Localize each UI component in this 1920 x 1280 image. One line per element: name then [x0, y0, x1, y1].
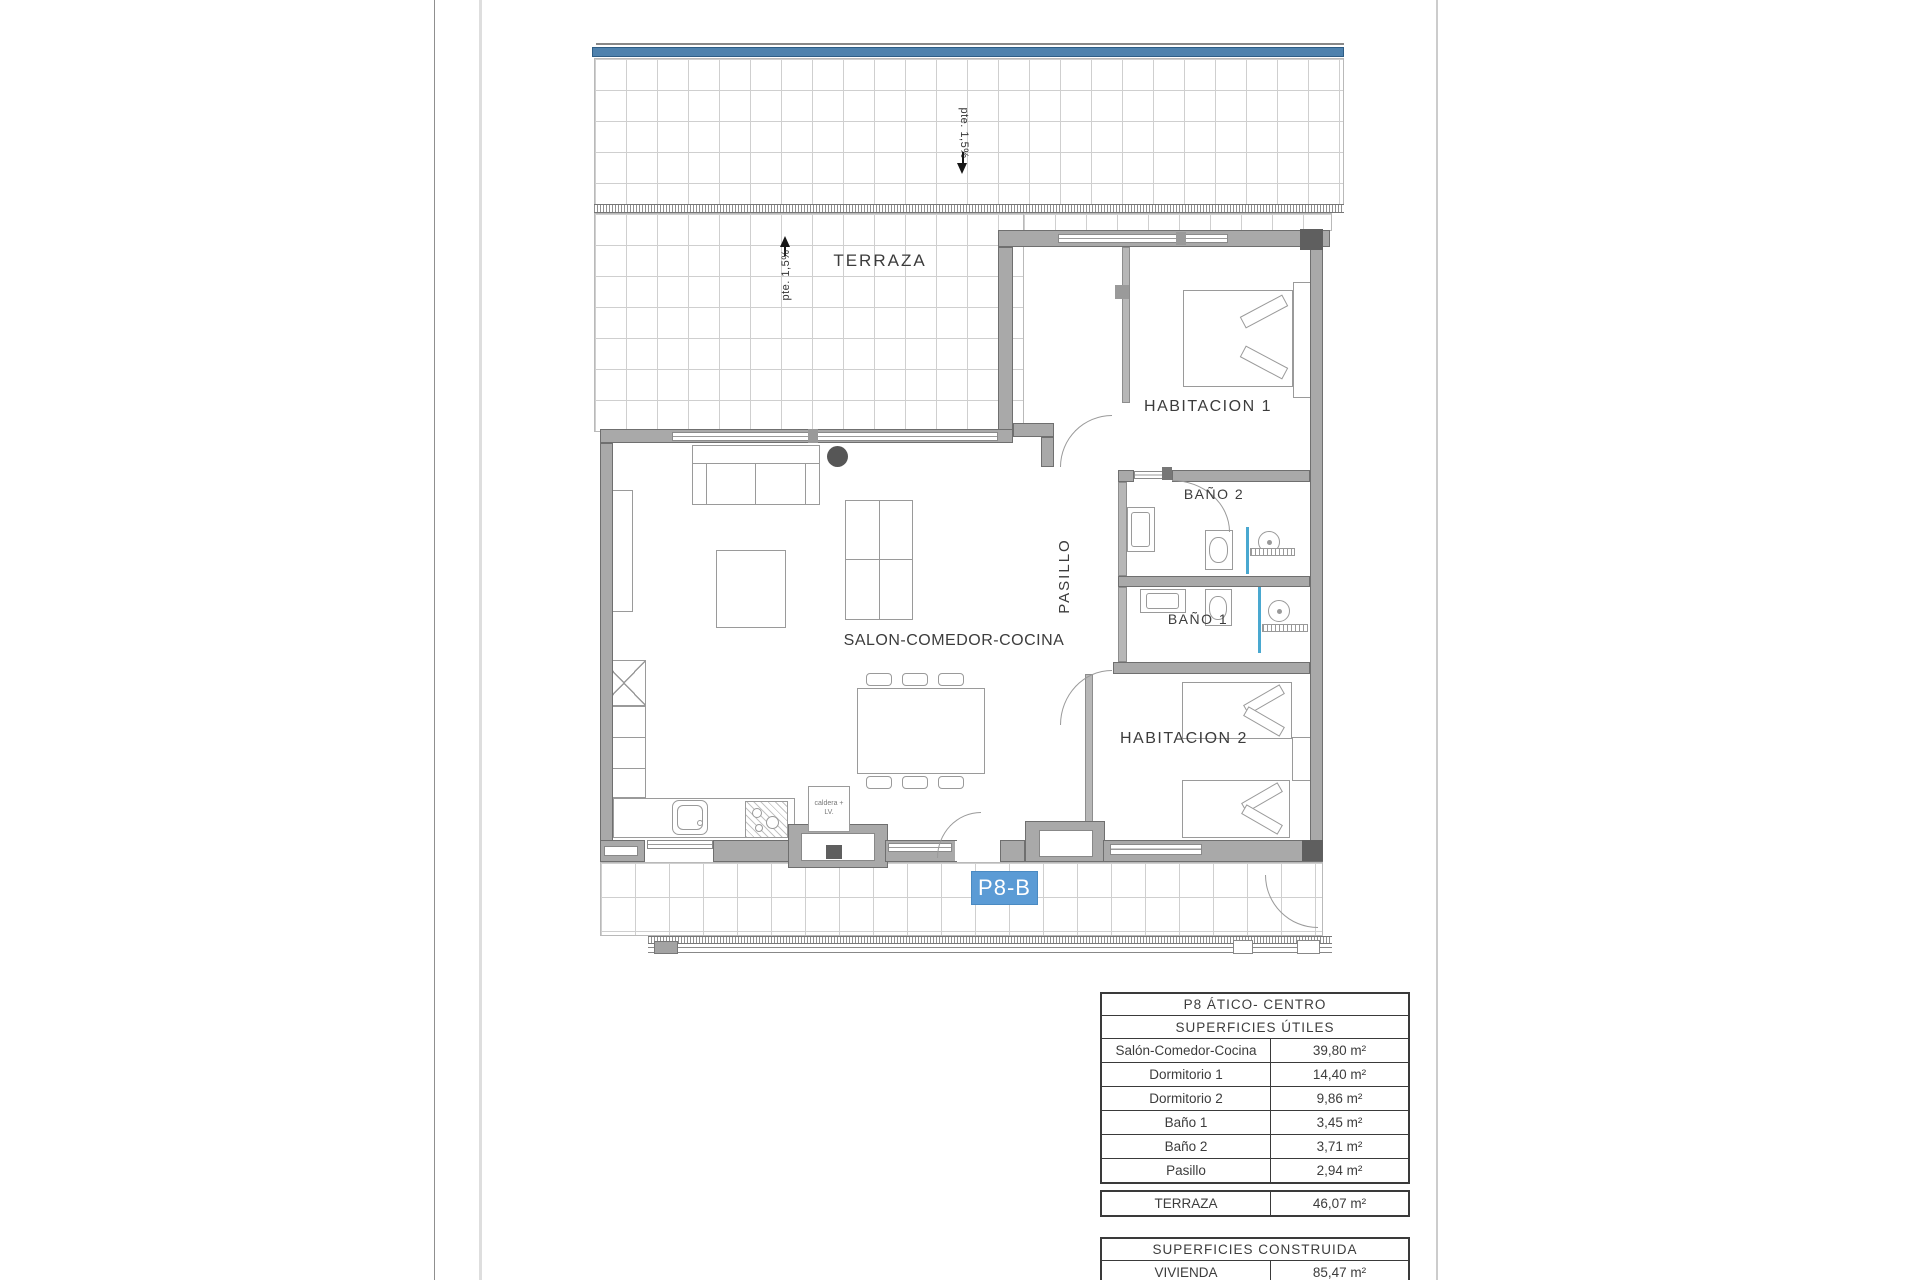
area-row: Baño 2 3,71 m²	[1102, 1134, 1408, 1158]
wall-bottom-b	[713, 840, 790, 862]
wall-bottom-d	[1000, 840, 1025, 862]
dining-chair	[902, 776, 928, 789]
sofa	[692, 445, 820, 505]
area-row-value: 2,94 m²	[1271, 1159, 1408, 1182]
wall-exterior-left	[600, 443, 613, 862]
wall-terraza-habitacion1	[998, 247, 1013, 437]
area-row-label: Salón-Comedor-Cocina	[1102, 1039, 1271, 1062]
area-table-main: P8 ÁTICO- CENTRO SUPERFICIES ÚTILES Saló…	[1100, 992, 1410, 1184]
area-table-subtitle: SUPERFICIES ÚTILES	[1102, 1016, 1408, 1038]
area-table-subtitle-row: SUPERFICIES ÚTILES	[1102, 1015, 1408, 1038]
sheet-border-line-right	[1436, 0, 1438, 1280]
sheet-fold-line-dark	[434, 0, 435, 1280]
wall-bano-divider	[1118, 576, 1310, 587]
area-table-terraza: TERRAZA 46,07 m²	[1100, 1190, 1410, 1217]
terraza-grid-strip	[1023, 213, 1332, 231]
towel-rail-bano1	[1262, 624, 1308, 632]
sofa-armrest-right	[805, 463, 806, 504]
area-table-title: P8 ÁTICO- CENTRO	[1102, 994, 1408, 1015]
terraza-grid-left	[594, 213, 1024, 432]
dining-chair	[902, 673, 928, 686]
door-arc-habitacion1	[1060, 415, 1112, 467]
shower-screen-bano1	[1258, 587, 1261, 653]
room-label-bano1: BAÑO 1	[1160, 611, 1236, 627]
entrance-door-block	[826, 845, 842, 859]
partition-habitacion1-left	[1122, 247, 1130, 403]
burner	[766, 816, 779, 829]
rug-coffee-table	[716, 550, 786, 628]
parapet-blue-band	[592, 47, 1344, 57]
dining-table	[857, 688, 985, 774]
room-label-terraza: TERRAZA	[818, 251, 942, 271]
area-row-value: 39,80 m²	[1271, 1039, 1408, 1062]
area-row: Baño 1 3,45 m²	[1102, 1110, 1408, 1134]
area-row-label: Dormitorio 2	[1102, 1087, 1271, 1110]
dining-chair	[938, 776, 964, 789]
wall-bano2-top-left	[1118, 470, 1134, 482]
slope-annotation-left: pte. 1,5%	[780, 243, 794, 307]
kitchen-sink-drain	[697, 820, 703, 826]
area-row-label: VIVIENDA	[1102, 1261, 1271, 1280]
sofa-seat-divider	[755, 463, 756, 504]
expansion-joint-upper	[594, 204, 1344, 213]
wall-exterior-right	[1310, 247, 1323, 860]
wall-jog-vertical	[1041, 437, 1054, 467]
towel-rail-bano2	[1250, 548, 1295, 556]
door-hinge-block-habitacion1	[1115, 285, 1129, 299]
area-row-label: Baño 1	[1102, 1111, 1271, 1134]
roof-edge-line	[596, 43, 1344, 45]
door-arc-salon-terraza	[937, 812, 981, 858]
area-row-value: 85,47 m²	[1271, 1261, 1408, 1280]
wall-habitacion2-top	[1113, 662, 1310, 674]
window-bottom-habitacion2	[1110, 844, 1202, 855]
area-table-title-row: P8 ÁTICO- CENTRO	[1102, 994, 1408, 1015]
cooktop	[745, 801, 788, 838]
structural-column	[827, 446, 848, 467]
window-bottom-left	[604, 846, 638, 856]
door-hinge-block-bano2	[1162, 467, 1172, 480]
plan-bottom-edge	[648, 947, 1332, 953]
burner	[752, 808, 762, 818]
sill-block-1	[1233, 940, 1253, 954]
area-row-label: Baño 2	[1102, 1135, 1271, 1158]
area-row-value: 9,86 m²	[1271, 1087, 1408, 1110]
window-habitacion1-terraza	[1058, 234, 1228, 243]
sofa-back-line	[693, 463, 819, 464]
terraza-grid-lower	[600, 862, 1323, 936]
area-row-value: 14,40 m²	[1271, 1063, 1408, 1086]
sheet-fold-line-light	[479, 0, 482, 1280]
room-label-habitacion1: HABITACION 1	[1138, 398, 1278, 416]
area-row: Dormitorio 2 9,86 m²	[1102, 1086, 1408, 1110]
dining-chair	[866, 776, 892, 789]
washbasin-bano1-bowl	[1146, 593, 1179, 609]
slope-arrow-down-icon	[957, 163, 967, 174]
room-label-salon: SALON-COMEDOR-COCINA	[832, 632, 1076, 650]
wall-pasillo-bano1	[1118, 587, 1127, 662]
area-table-title-row: SUPERFICIES CONSTRUIDA	[1102, 1239, 1408, 1260]
washbasin-bano2-bowl	[1131, 512, 1150, 547]
area-table-construida: SUPERFICIES CONSTRUIDA VIVIENDA 85,47 m²	[1100, 1237, 1410, 1280]
area-row: TERRAZA 46,07 m²	[1102, 1192, 1408, 1215]
window-mullion	[808, 429, 818, 443]
dining-chair	[866, 673, 892, 686]
utility-box-label: caldera + LV.	[811, 800, 847, 818]
door-arc-habitacion2	[1060, 670, 1112, 725]
area-row: Salón-Comedor-Cocina 39,80 m²	[1102, 1038, 1408, 1062]
shower-screen-bano2	[1246, 527, 1249, 574]
corner-pillar-top-right	[1300, 229, 1323, 250]
corner-pillar-bottom-right	[1302, 840, 1323, 861]
sideboard-line-v	[879, 501, 880, 619]
expansion-joint-lower	[648, 936, 1332, 944]
area-table-construida-title: SUPERFICIES CONSTRUIDA	[1102, 1239, 1408, 1260]
utility-box: caldera + LV.	[808, 786, 850, 832]
area-row-label: TERRAZA	[1102, 1192, 1271, 1215]
area-row-label: Dormitorio 1	[1102, 1063, 1271, 1086]
floor-plan-sheet: P8-B	[0, 0, 1920, 1280]
toilet-bano2-bowl	[1209, 537, 1228, 563]
window-salon-terraza	[672, 432, 998, 441]
room-label-pasillo: PASILLO	[1056, 524, 1074, 628]
dining-chair	[938, 673, 964, 686]
sill-block-gray	[654, 941, 678, 954]
sideboard	[845, 500, 913, 620]
wall-pasillo-bano2	[1118, 482, 1127, 576]
area-row: Dormitorio 1 14,40 m²	[1102, 1062, 1408, 1086]
burner	[755, 824, 763, 832]
sill-block-2	[1297, 940, 1320, 954]
window-mullion	[1176, 232, 1186, 245]
area-row-value: 3,71 m²	[1271, 1135, 1408, 1158]
sofa-armrest-left	[706, 463, 707, 504]
wall-bano2-top-right	[1172, 470, 1310, 482]
kitchen-sink-bowl	[677, 805, 703, 830]
unit-badge: P8-B	[971, 871, 1038, 905]
area-row: VIVIENDA 85,47 m²	[1102, 1260, 1408, 1280]
window-sill-kitchen	[647, 840, 713, 849]
room-label-bano2: BAÑO 2	[1176, 486, 1252, 502]
area-row-value: 46,07 m²	[1271, 1192, 1408, 1215]
entrance-recess-2-inner	[1039, 830, 1093, 857]
shower-head-bano2-dot	[1267, 540, 1272, 545]
wall-jog-horizontal	[1013, 423, 1054, 437]
area-row-label: Pasillo	[1102, 1159, 1271, 1182]
room-label-habitacion2: HABITACION 2	[1120, 730, 1244, 748]
shower-head-bano1-dot	[1277, 609, 1282, 614]
area-row-value: 3,45 m²	[1271, 1111, 1408, 1134]
area-row: Pasillo 2,94 m²	[1102, 1158, 1408, 1182]
